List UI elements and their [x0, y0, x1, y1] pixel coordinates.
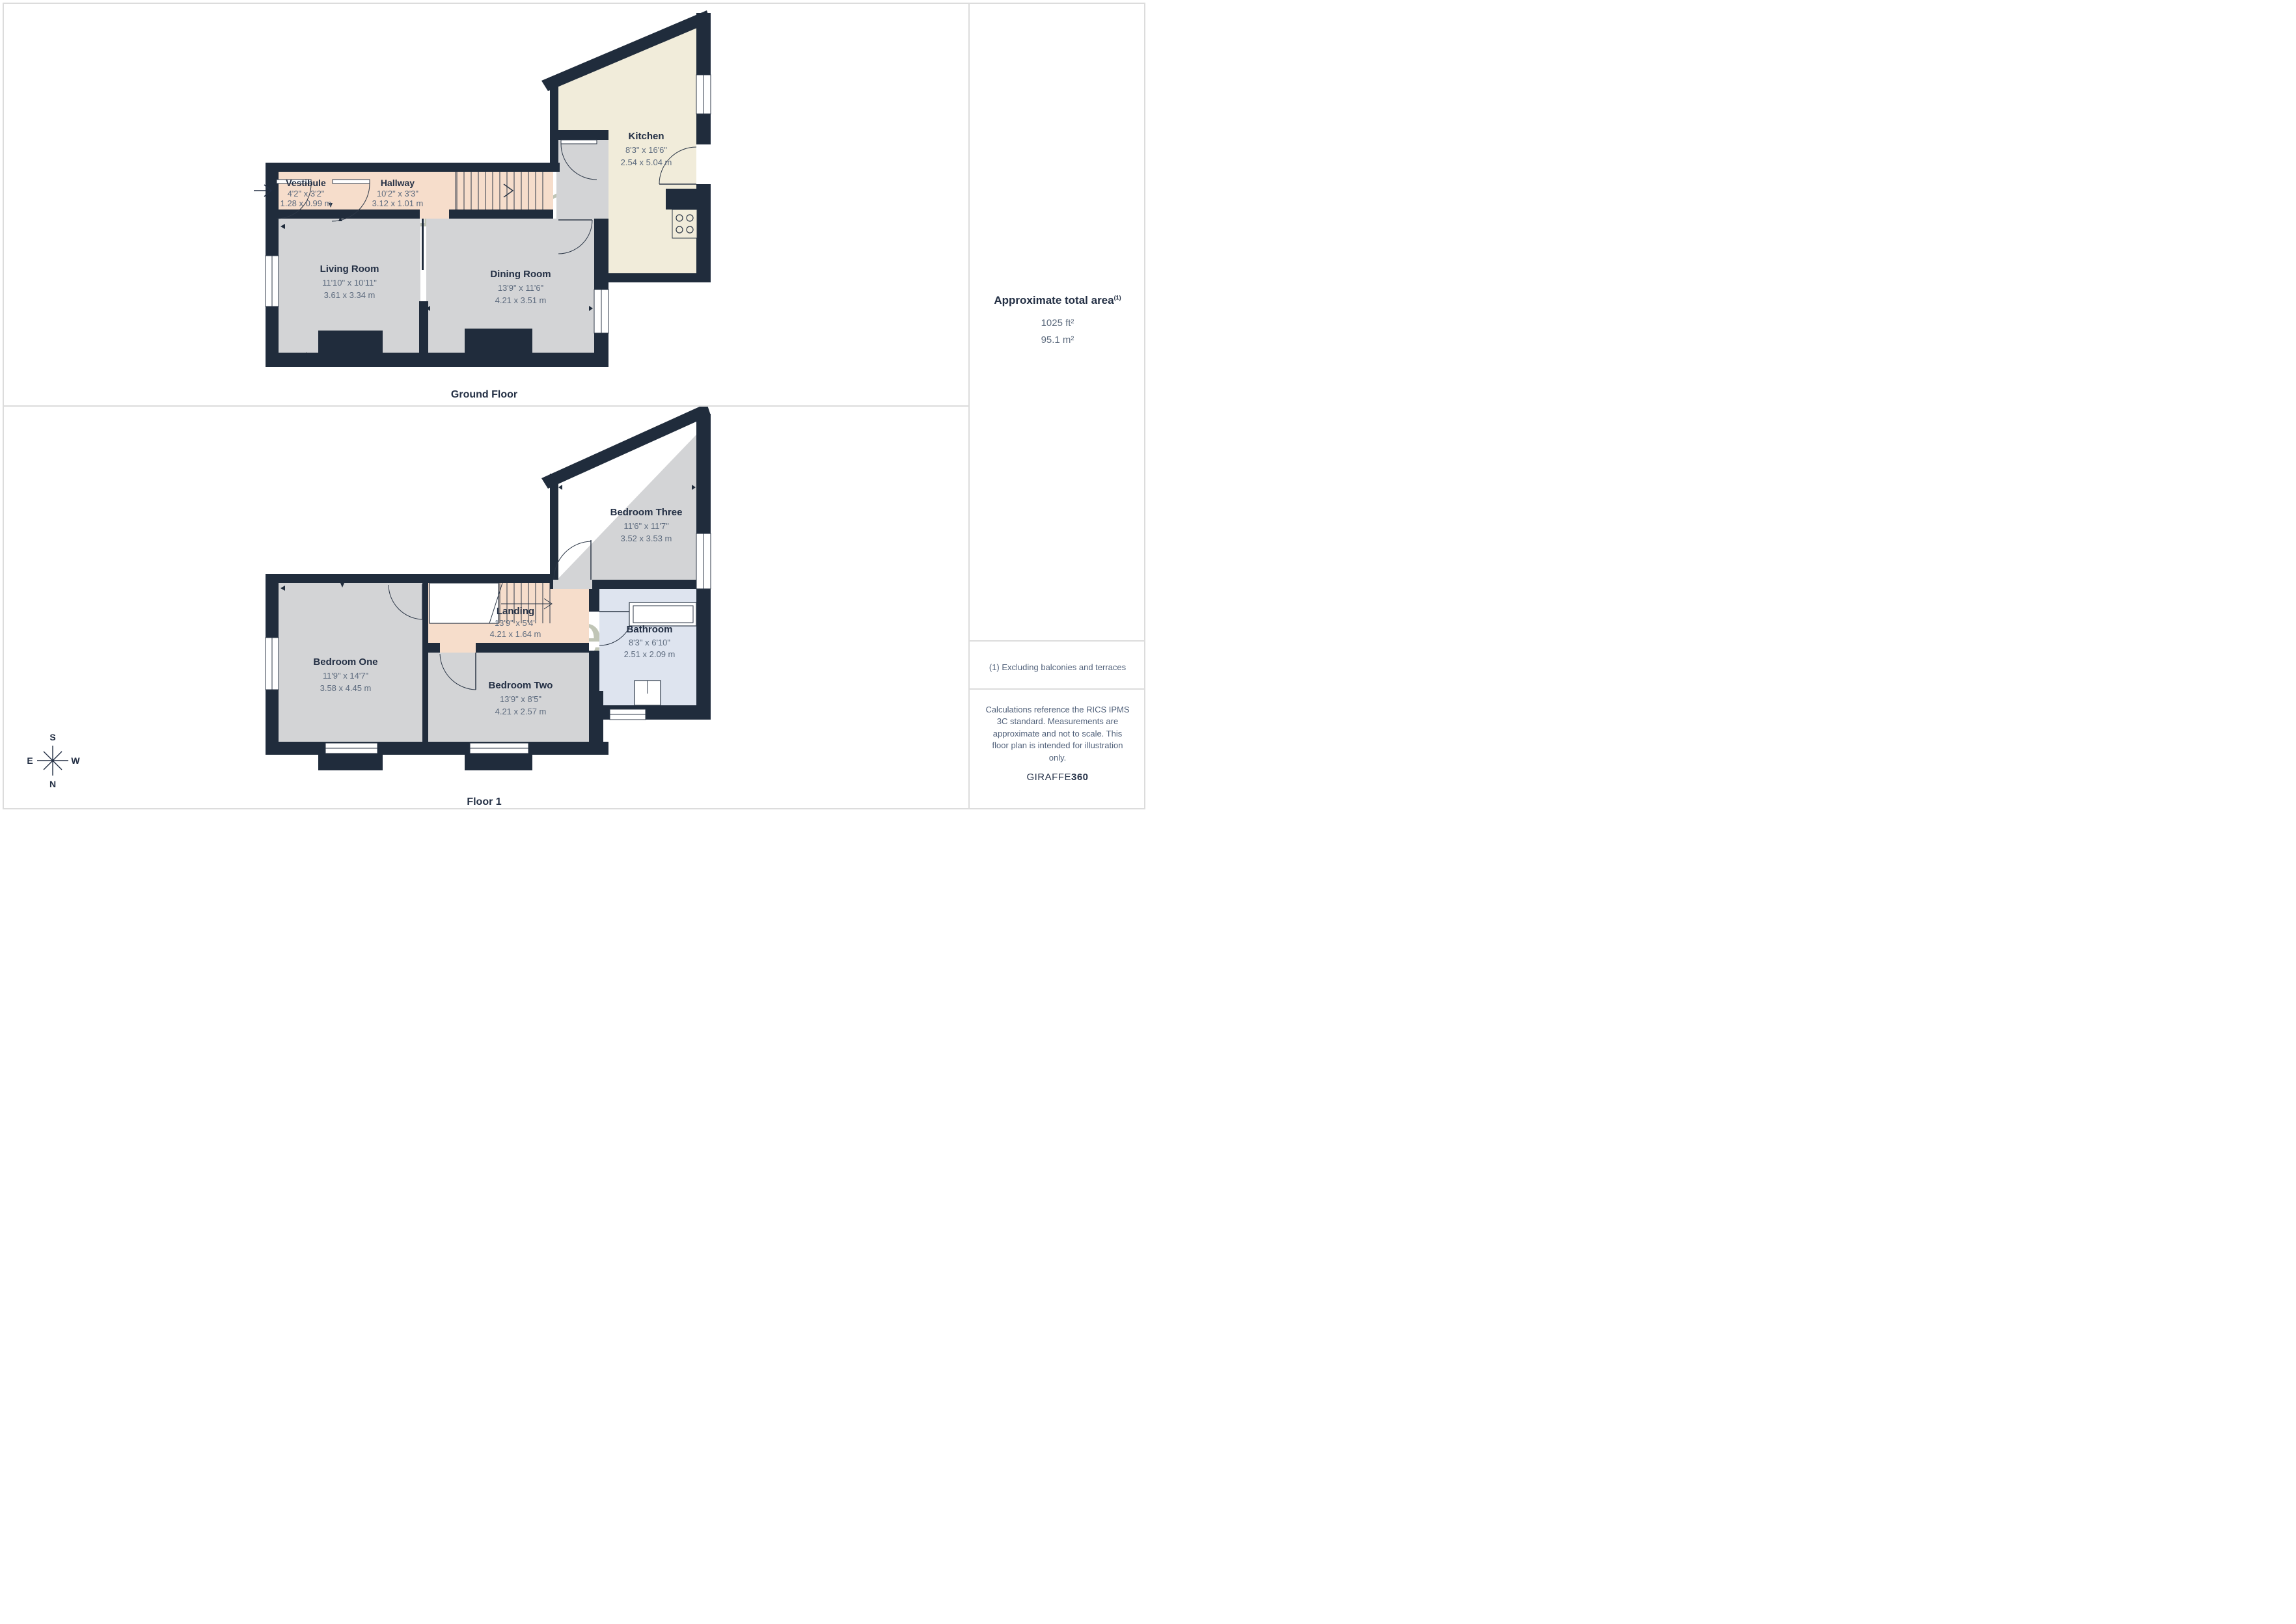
floorplan-page: Humphreys E S T A T E S & L E T T I N G … [0, 0, 1148, 812]
page-frame [3, 3, 1145, 809]
